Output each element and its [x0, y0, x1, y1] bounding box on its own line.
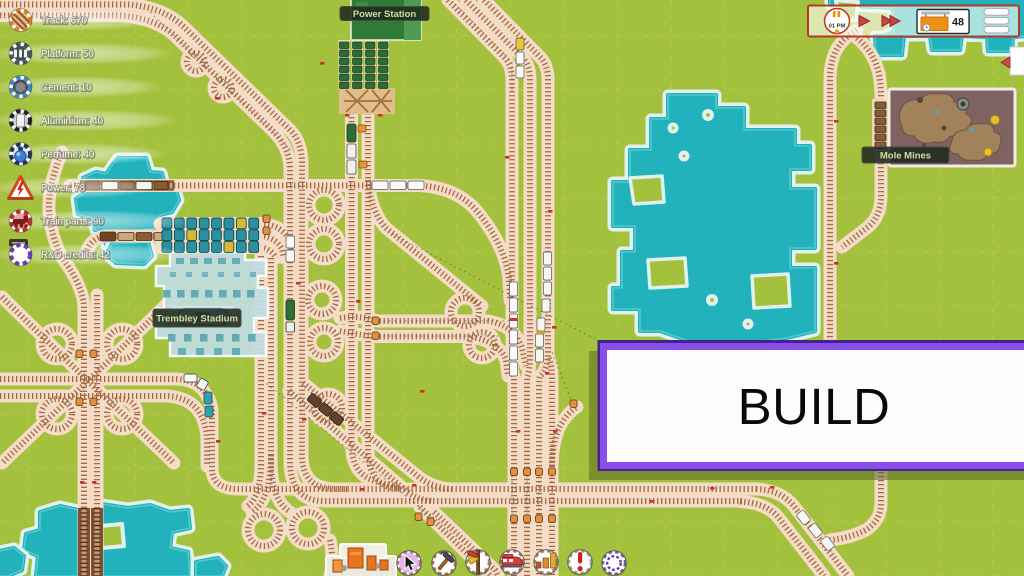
svg-text:Trembley Stadium: Trembley Stadium — [156, 313, 238, 324]
svg-text:BUILD: BUILD — [738, 378, 891, 435]
svg-text:Perfume: 40: Perfume: 40 — [41, 150, 95, 161]
svg-text:Aluminium: 40: Aluminium: 40 — [41, 116, 104, 127]
svg-text:01 PM: 01 PM — [829, 24, 846, 30]
svg-text:Train parts: 90: Train parts: 90 — [41, 217, 104, 228]
svg-text:Cement: 10: Cement: 10 — [41, 83, 92, 94]
svg-text:R&D credits: 42: R&D credits: 42 — [41, 250, 110, 261]
svg-text:Power: 78: Power: 78 — [41, 183, 86, 194]
svg-text:Power Station: Power Station — [353, 9, 417, 20]
svg-text:48: 48 — [952, 17, 964, 29]
svg-text:Track: 670: Track: 670 — [41, 16, 87, 27]
svg-text:Platform: 50: Platform: 50 — [41, 49, 94, 60]
svg-text:Mole Mines: Mole Mines — [880, 150, 931, 161]
